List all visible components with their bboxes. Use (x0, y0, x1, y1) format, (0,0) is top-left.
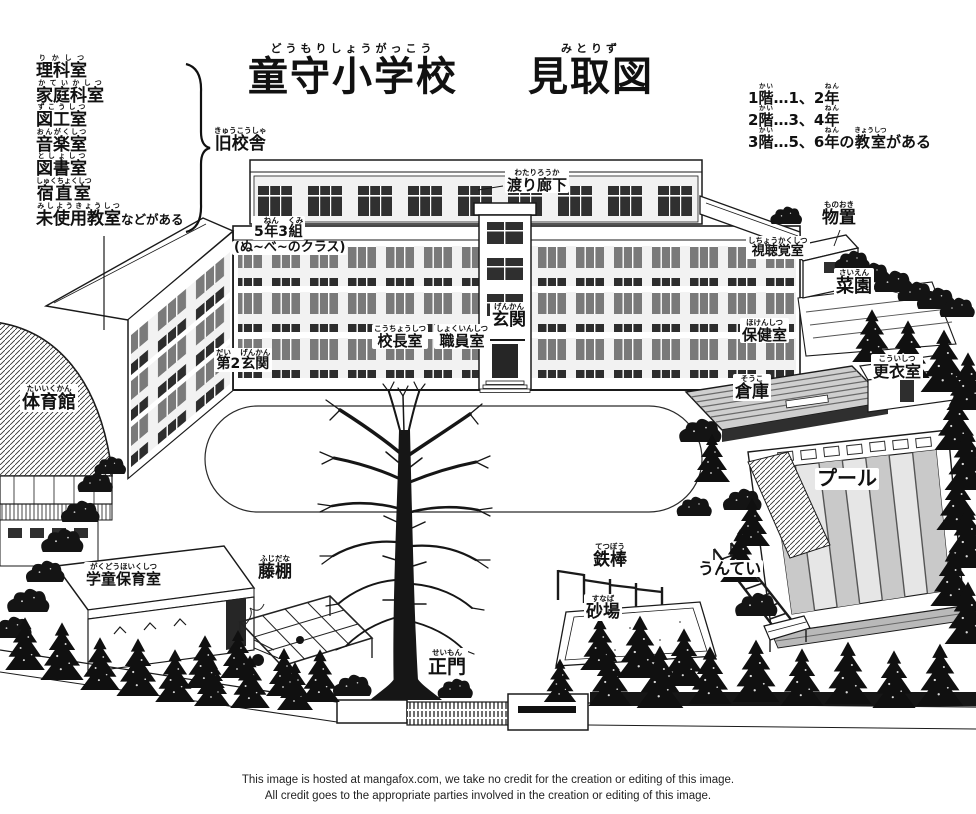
room-list-item: 図工室ずこうしつ (36, 103, 184, 128)
label-gymnasium: 体育館たいいくかん (20, 384, 78, 412)
label-storage-shed: 物置ものおき (820, 200, 858, 227)
label-principal-office: 校長室こうちょうしつ (372, 324, 428, 349)
label-staff-room: 職員室しょくいんしつ (434, 324, 490, 349)
label-vegetable-garden: 菜園さいえん (834, 268, 874, 296)
label-changing-room: 更衣室こういしつ (871, 354, 923, 380)
running-track (205, 406, 702, 512)
gymnasium (0, 322, 112, 566)
label-after-school-care: 学童保育室がくどうほいくしつ (84, 562, 163, 587)
room-list-item: 家庭科室かていかしつ (36, 79, 184, 104)
gate-sign (518, 706, 576, 713)
label-warehouse: 倉庫そうこ (733, 374, 771, 401)
label-main-gate: 正門せいもん (426, 648, 468, 678)
old-building-room-list: 理科室りかしつ 家庭科室かていかしつ 図工室ずこうしつ 音楽室おんがくしつ 図書… (36, 54, 184, 226)
hosting-credit: This image is hosted at mangafox.com, we… (0, 772, 976, 804)
room-list-item: 理科室りかしつ (36, 54, 184, 79)
credit-line-1: This image is hosted at mangafox.com, we… (0, 772, 976, 788)
label-second-entrance: 第だい2玄関げんかん (214, 348, 272, 372)
label-pool: プール (815, 468, 879, 490)
credit-line-2: All credit goes to the appropriate parti… (0, 788, 976, 804)
label-old-school-building: 旧校舎きゅうこうしゃ (212, 126, 269, 153)
room-list-item: 図書室としょしつ (36, 152, 184, 177)
label-wisteria-pergola: 藤棚ふじだな (256, 554, 294, 581)
room-list-item: 宿直室しゅくちょくしつ (36, 177, 184, 202)
page-title-school: 童守小学校どうもりしょうがっこう (248, 42, 458, 102)
label-class-5-3: 5年ねん3組くみ (252, 216, 305, 240)
label-sandbox: 砂場すなば (584, 594, 622, 621)
label-main-entrance: 玄関げんかん (490, 302, 528, 329)
floor-legend: 1階かい…1、2年ねん 2階かい…3、4年ねん 3階かい…5、6年ねんの教室きょ… (748, 82, 931, 148)
entrance-tower (474, 203, 536, 393)
floor-legend-line: 1階かい…1、2年ねん (748, 82, 931, 104)
school-map-page: 童守小学校どうもりしょうがっこう 見取図みとりず 理科室りかしつ 家庭科室かてい… (0, 0, 976, 814)
label-av-room: 視聴覚室しちょうかくしつ (746, 236, 810, 259)
page-title-map: 見取図みとりず (528, 42, 654, 102)
room-list-item: 音楽室おんがくしつ (36, 128, 184, 153)
room-list-brace (186, 64, 210, 232)
label-horizontal-bars: 鉄棒てつぼう (591, 542, 629, 569)
room-list-item: 未使用教室みしようきょうしつなどがある (36, 202, 184, 227)
label-monkey-bars: うんてい (696, 560, 763, 577)
label-covered-corridor: 渡り廊下わたりろうか (505, 168, 569, 193)
label-nurse-office: 保健室ほけんしつ (740, 318, 789, 343)
label-class-5-3-sub: (ぬ~べ~のクラス) (232, 241, 347, 255)
